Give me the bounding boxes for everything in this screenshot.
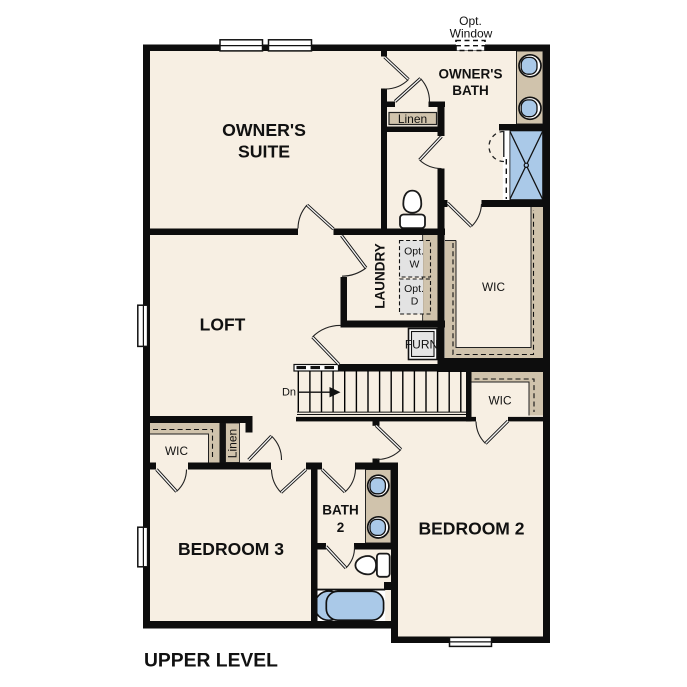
svg-text:UPPER LEVEL: UPPER LEVEL: [144, 651, 278, 672]
svg-text:BATH: BATH: [452, 83, 489, 98]
svg-text:LAUNDRY: LAUNDRY: [373, 243, 388, 309]
svg-text:Opt.: Opt.: [404, 246, 424, 258]
svg-text:Window: Window: [450, 27, 493, 41]
svg-text:WIC: WIC: [489, 394, 512, 408]
svg-text:BATH: BATH: [322, 503, 359, 518]
svg-text:Linen: Linen: [226, 429, 240, 458]
svg-text:WIC: WIC: [482, 280, 505, 294]
svg-text:WIC: WIC: [165, 444, 188, 458]
svg-text:Opt.: Opt.: [404, 283, 424, 295]
svg-text:D: D: [411, 296, 419, 308]
svg-text:BEDROOM 3: BEDROOM 3: [178, 539, 284, 559]
svg-text:OWNER'S: OWNER'S: [439, 67, 503, 82]
svg-text:Dn: Dn: [282, 387, 296, 399]
svg-text:SUITE: SUITE: [238, 141, 290, 161]
svg-text:2: 2: [337, 520, 345, 535]
svg-text:BEDROOM 2: BEDROOM 2: [419, 519, 525, 539]
svg-text:OWNER'S: OWNER'S: [222, 120, 306, 140]
svg-text:FURN: FURN: [405, 338, 438, 352]
svg-text:LOFT: LOFT: [200, 315, 246, 335]
svg-text:Linen: Linen: [398, 112, 427, 126]
svg-text:W: W: [410, 259, 420, 271]
